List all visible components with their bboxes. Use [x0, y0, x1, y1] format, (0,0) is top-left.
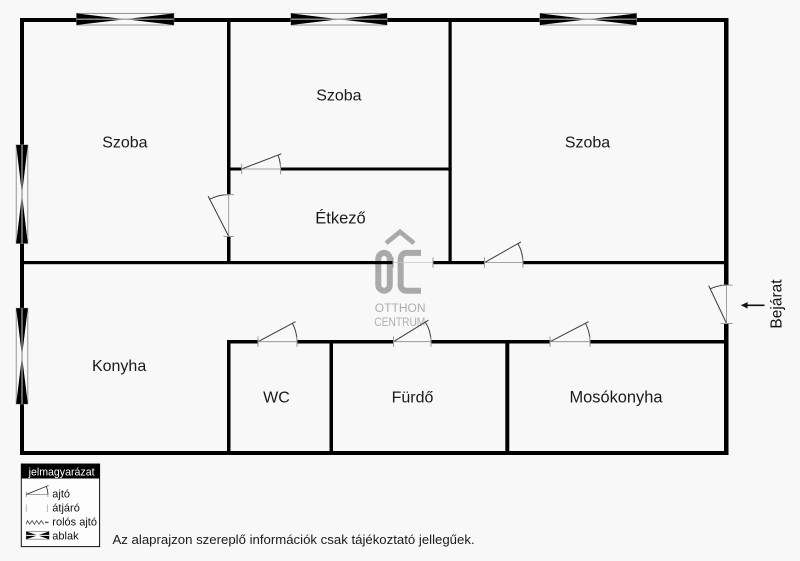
svg-text:rolós ajtó: rolós ajtó [52, 517, 97, 529]
svg-text:Az alaprajzon szereplő informá: Az alaprajzon szereplő információk csak … [113, 532, 475, 547]
svg-text:Fürdő: Fürdő [392, 390, 434, 407]
svg-text:OTTHON: OTTHON [375, 302, 426, 315]
svg-text:Bejárat: Bejárat [769, 279, 786, 329]
svg-text:WC: WC [263, 390, 290, 407]
svg-text:ajtó: ajtó [52, 489, 70, 501]
svg-text:Szoba: Szoba [565, 135, 610, 152]
svg-text:Szoba: Szoba [316, 87, 361, 104]
svg-text:átjáró: átjáró [52, 503, 80, 515]
svg-text:Étkező: Étkező [315, 209, 365, 228]
svg-text:jelmagyarázat: jelmagyarázat [28, 466, 95, 478]
svg-text:Mosókonyha: Mosókonyha [570, 389, 664, 407]
svg-text:Szoba: Szoba [102, 135, 147, 152]
svg-text:ablak: ablak [52, 531, 79, 543]
svg-text:Konyha: Konyha [92, 358, 146, 375]
